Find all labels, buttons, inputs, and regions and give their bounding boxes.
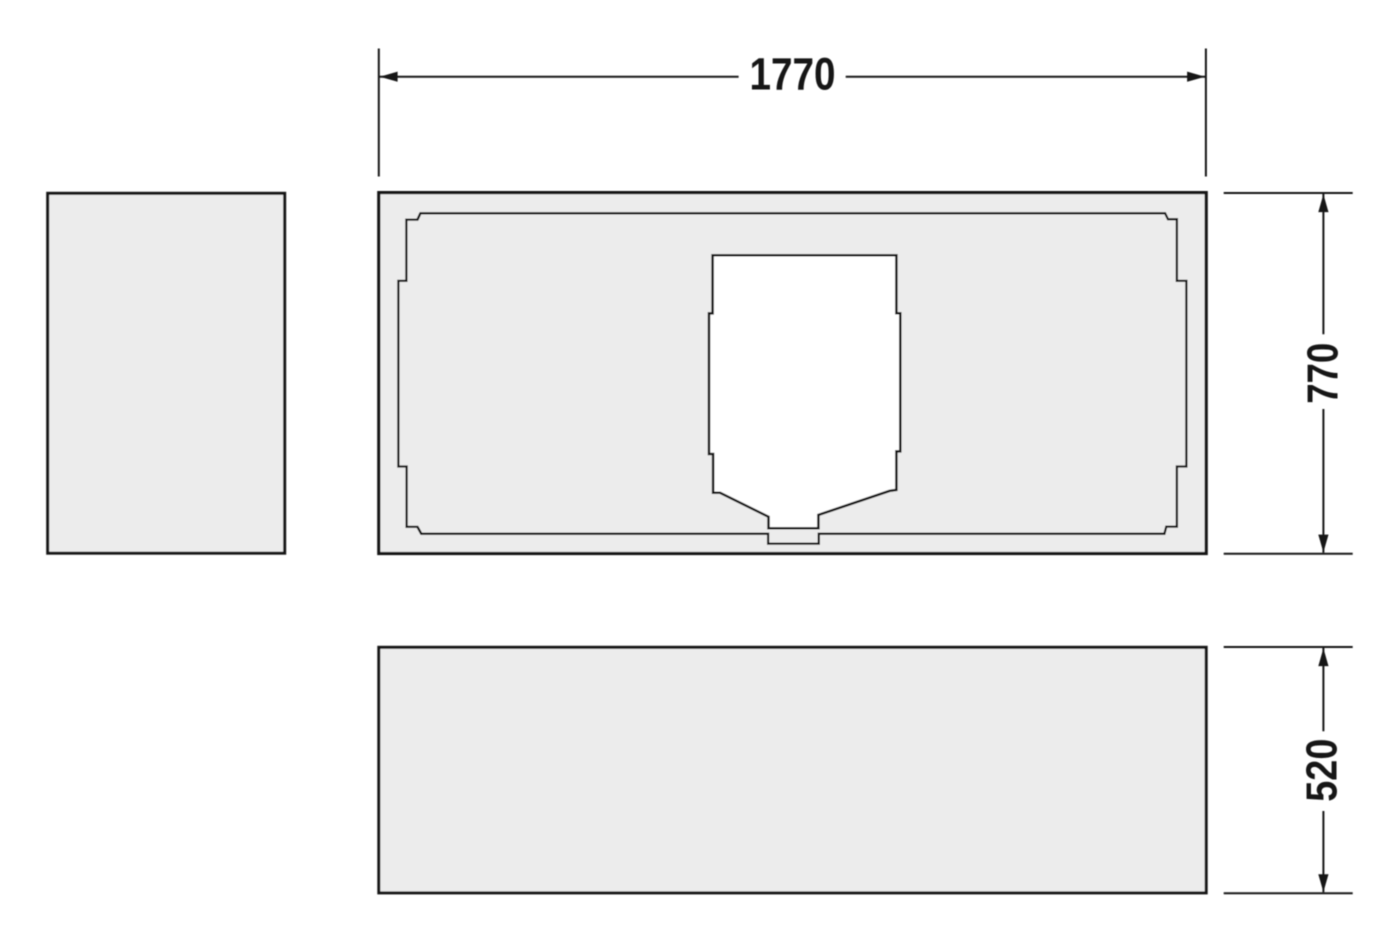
svg-text:1770: 1770: [749, 49, 835, 100]
svg-text:770: 770: [1299, 343, 1348, 404]
svg-text:520: 520: [1297, 739, 1346, 802]
